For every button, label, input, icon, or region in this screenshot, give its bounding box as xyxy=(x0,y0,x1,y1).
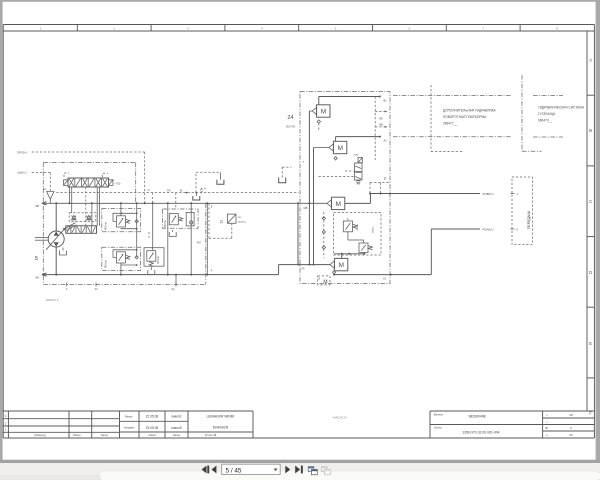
svg-text:450 bar: 450 bar xyxy=(104,222,107,230)
svg-text:ПЕРЕДАЧА: ПЕРЕДАЧА xyxy=(527,210,531,229)
svg-text:Datum: Datum xyxy=(73,433,81,437)
svg-text:РОВ6.U: РОВ6.U xyxy=(483,192,494,196)
svg-text:Datum: Datum xyxy=(149,433,157,437)
svg-text:Änderung: Änderung xyxy=(34,433,46,437)
svg-text:096477__: 096477__ xyxy=(443,122,457,126)
svg-text:380 bar: 380 bar xyxy=(164,220,167,228)
svg-text:EPS0.U: EPS0.U xyxy=(18,150,28,154)
svg-text:LIEBHERR WERK: LIEBHERR WERK xyxy=(206,415,235,419)
svg-text:M: M xyxy=(323,280,327,286)
svg-text:M: M xyxy=(338,145,343,152)
svg-text:096470__: 096470__ xyxy=(538,119,552,123)
svg-text:Bl.: Bl. xyxy=(545,426,548,430)
svg-text:23.05.08: 23.05.08 xyxy=(146,426,159,430)
svg-text:НАСОС 3: НАСОС 3 xyxy=(46,298,59,302)
svg-text:Ausgabe: Ausgabe xyxy=(124,426,135,430)
svg-text:450 bar: 450 bar xyxy=(104,260,107,268)
svg-text:FA: FA xyxy=(302,268,305,271)
svg-text:5 / 45: 5 / 45 xyxy=(226,468,242,475)
svg-text:Name: Name xyxy=(101,433,108,437)
svg-text:ГИДРАВЛИЧЕСКАЯ СИСТЕМА: ГИДРАВЛИЧЕСКАЯ СИСТЕМА xyxy=(538,106,585,110)
svg-text:G: G xyxy=(147,188,149,192)
svg-text:Iwano1: Iwano1 xyxy=(171,415,182,419)
svg-text:M: M xyxy=(339,262,344,269)
svg-text:1356-970.32.00.001-004: 1356-970.32.00.001-004 xyxy=(462,431,499,435)
svg-text:PS: PS xyxy=(167,188,171,192)
svg-text:D: D xyxy=(589,270,592,275)
svg-text:Name: Name xyxy=(173,433,180,437)
svg-text:300bar: 300bar xyxy=(356,224,359,231)
svg-text:(400bar): (400bar) xyxy=(238,221,247,224)
svg-text:VR: VR xyxy=(569,413,573,417)
svg-text:ДОПОЛНИТЕЛЬНАЯ ГИДРАВЛИКА: ДОПОЛНИТЕЛЬНАЯ ГИДРАВЛИКА xyxy=(443,109,496,113)
svg-text:EHINGEN: EHINGEN xyxy=(213,426,229,430)
svg-text:E: E xyxy=(589,341,592,346)
svg-text:350 bar: 350 bar xyxy=(157,256,160,264)
svg-text:22.05.08: 22.05.08 xyxy=(146,415,159,419)
svg-text:НАСОС III: НАСОС III xyxy=(333,416,347,420)
svg-text:MA: MA xyxy=(379,118,383,121)
svg-text:5: 5 xyxy=(35,256,38,262)
svg-text:24: 24 xyxy=(287,115,293,121)
svg-text:0pS0.U: 0pS0.U xyxy=(18,171,27,175)
svg-text:-Y50: -Y50 xyxy=(115,181,121,185)
svg-text:Bearb.: Bearb. xyxy=(125,414,133,418)
svg-text:32: 32 xyxy=(219,220,223,224)
svg-text:T1: T1 xyxy=(200,188,204,192)
svg-text:ГУСЕНИЦА: ГУСЕНИЦА xyxy=(538,112,556,116)
svg-text:A: A xyxy=(589,58,592,63)
svg-text:Iwano5: Iwano5 xyxy=(171,426,182,430)
svg-text:C: C xyxy=(589,199,592,204)
svg-text:982900498: 982900498 xyxy=(469,414,486,418)
svg-text:Zeichn.: Zeichn. xyxy=(434,426,443,430)
svg-text:ПОВОРОТНАЯ ПЛАТФОРМА: ПОВОРОТНАЯ ПЛАТФОРМА xyxy=(443,115,487,119)
svg-text:MB: MB xyxy=(304,207,308,210)
svg-text:B: B xyxy=(589,128,592,133)
svg-text:320bar: 320bar xyxy=(372,226,375,233)
svg-text:Benenn.: Benenn. xyxy=(434,413,444,417)
svg-text:M: M xyxy=(321,109,326,116)
svg-text:45: 45 xyxy=(569,433,573,437)
svg-text:Firmen-Bl.: Firmen-Bl. xyxy=(205,433,217,437)
svg-text:MA: MA xyxy=(35,276,39,279)
svg-text:РОА6.U: РОА6.U xyxy=(483,227,494,231)
svg-text:Y53.4.7B: Y53.4.7B xyxy=(286,127,296,129)
svg-text:v.: v. xyxy=(546,433,548,437)
svg-text:MS: MS xyxy=(197,242,201,245)
svg-text:M: M xyxy=(336,201,341,208)
svg-text:-Y75: -Y75 xyxy=(353,154,359,157)
svg-text:MB: MB xyxy=(379,123,383,126)
svg-text:MB: MB xyxy=(35,205,39,208)
